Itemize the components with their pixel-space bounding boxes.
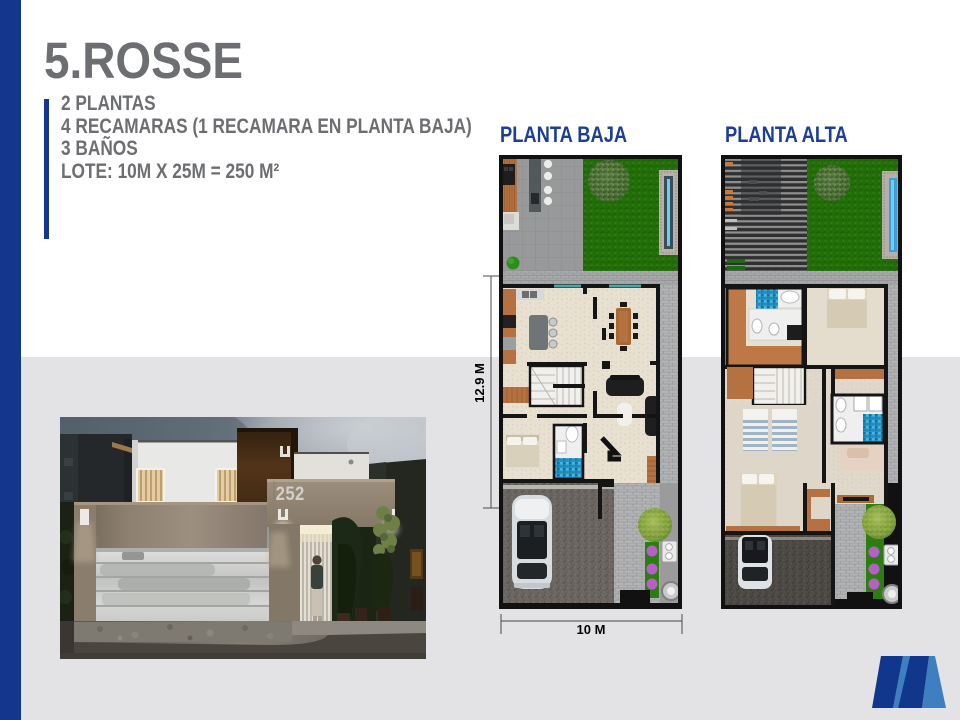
svg-text:12.9 M: 12.9 M <box>472 363 487 403</box>
svg-text:252: 252 <box>276 483 305 504</box>
svg-text:10 M: 10 M <box>577 622 606 637</box>
